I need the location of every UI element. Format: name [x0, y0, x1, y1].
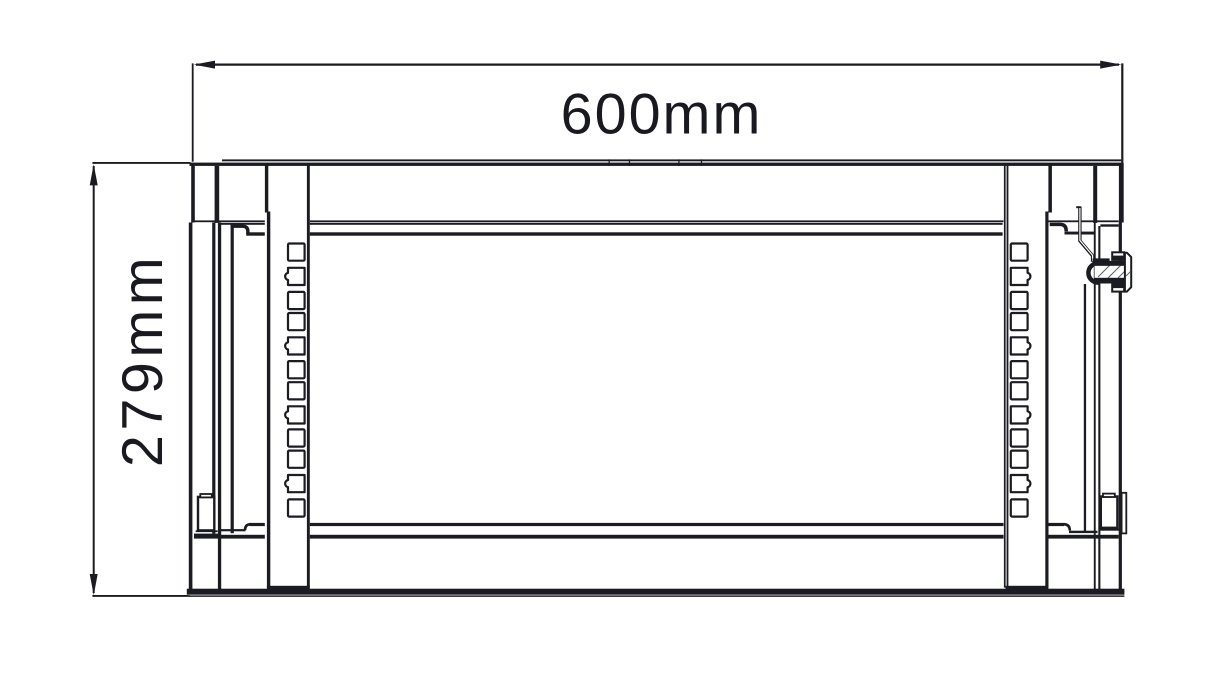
svg-text:600mm: 600mm — [561, 83, 763, 147]
svg-text:279mm: 279mm — [111, 253, 175, 467]
